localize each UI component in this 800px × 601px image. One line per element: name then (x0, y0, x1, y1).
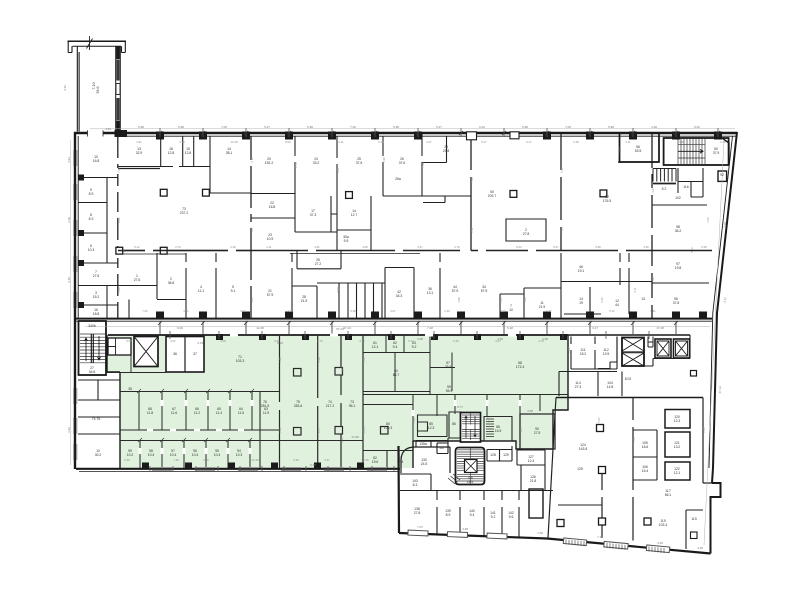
svg-text:6.77: 6.77 (618, 147, 622, 153)
svg-text:12.4: 12.4 (528, 459, 535, 463)
svg-text:2.79: 2.79 (317, 339, 323, 343)
svg-text:5.98: 5.98 (393, 125, 399, 129)
svg-text:173.4: 173.4 (516, 365, 525, 369)
svg-text:5.28: 5.28 (507, 326, 513, 330)
svg-text:3.07: 3.07 (250, 227, 254, 233)
svg-text:56.5: 56.5 (446, 389, 453, 393)
svg-text:4.91: 4.91 (67, 157, 71, 163)
svg-text:7.07: 7.07 (417, 525, 423, 529)
svg-text:3.07: 3.07 (390, 309, 396, 313)
svg-text:2.11: 2.11 (287, 309, 293, 313)
svg-text:12.1: 12.1 (372, 345, 379, 349)
svg-text:9.4: 9.4 (393, 345, 398, 349)
svg-text:137: 137 (439, 446, 445, 450)
svg-text:2.11: 2.11 (723, 297, 727, 303)
svg-text:103.3: 103.3 (236, 359, 245, 363)
svg-text:13: 13 (641, 297, 645, 301)
svg-text:3.98: 3.98 (359, 339, 365, 343)
svg-text:2.11: 2.11 (250, 157, 254, 163)
svg-text:2.46: 2.46 (600, 297, 604, 303)
svg-text:14.8: 14.8 (607, 385, 614, 389)
svg-text:57.43: 57.43 (336, 327, 344, 331)
svg-text:38.1: 38.1 (226, 151, 233, 155)
svg-text:2.40: 2.40 (720, 140, 726, 144)
svg-text:176.5: 176.5 (603, 199, 612, 203)
svg-text:11.9: 11.9 (263, 411, 269, 415)
svg-text:5.12: 5.12 (378, 140, 384, 144)
svg-text:12.3: 12.3 (428, 426, 435, 430)
svg-text:3.27: 3.27 (495, 339, 501, 343)
svg-text:2.79: 2.79 (538, 339, 544, 343)
svg-text:5.98: 5.98 (595, 245, 601, 249)
svg-text:9.36: 9.36 (274, 339, 280, 343)
svg-text:57.9: 57.9 (267, 293, 274, 297)
svg-text:2.79: 2.79 (454, 245, 460, 249)
svg-text:27.8: 27.8 (414, 511, 421, 515)
svg-text:8.3: 8.3 (413, 483, 418, 487)
svg-text:5.27: 5.27 (481, 140, 487, 144)
svg-text:3.27: 3.27 (417, 245, 423, 249)
svg-text:5.12: 5.12 (134, 245, 140, 249)
svg-text:16.5: 16.5 (495, 429, 502, 433)
svg-text:128: 128 (490, 453, 496, 457)
svg-text:9.36: 9.36 (179, 140, 185, 144)
svg-text:57.9: 57.9 (452, 289, 459, 293)
svg-text:16.8: 16.8 (93, 159, 100, 163)
svg-text:7.06: 7.06 (632, 437, 636, 443)
svg-text:3.27: 3.27 (426, 140, 432, 144)
svg-text:5.98: 5.98 (307, 125, 313, 129)
svg-text:17.48: 17.48 (656, 326, 664, 330)
svg-text:10.4: 10.4 (170, 453, 177, 457)
svg-text:26a: 26a (395, 177, 401, 181)
svg-text:7.06: 7.06 (117, 167, 121, 173)
svg-text:3.48: 3.48 (573, 140, 579, 144)
svg-text:34.3: 34.3 (396, 294, 403, 298)
svg-text:3.27: 3.27 (592, 326, 598, 330)
svg-text:34.6: 34.6 (89, 370, 96, 374)
svg-text:281.5: 281.5 (261, 404, 270, 408)
svg-text:36.2: 36.2 (675, 229, 682, 233)
svg-text:5.27: 5.27 (560, 167, 564, 173)
svg-text:7.06: 7.06 (706, 217, 710, 223)
svg-text:9.2: 9.2 (412, 345, 417, 349)
svg-text:9.1: 9.1 (231, 289, 236, 293)
svg-text:4.91: 4.91 (183, 309, 189, 313)
svg-text:11.1: 11.1 (198, 289, 204, 293)
svg-text:9.2: 9.2 (491, 515, 496, 519)
svg-text:5.2: 5.2 (662, 187, 667, 191)
svg-text:57.9: 57.9 (481, 289, 488, 293)
svg-text:12.48: 12.48 (252, 458, 259, 462)
svg-text:125: 125 (577, 467, 583, 471)
svg-text:4.91: 4.91 (650, 309, 656, 313)
svg-text:56.1: 56.1 (665, 493, 672, 497)
svg-text:4.91: 4.91 (136, 140, 142, 144)
svg-text:17.08: 17.08 (351, 435, 359, 439)
svg-text:96.1: 96.1 (349, 404, 356, 408)
svg-text:10.4: 10.4 (214, 453, 221, 457)
svg-text:30.2: 30.2 (95, 453, 102, 457)
svg-text:13.2: 13.2 (674, 445, 681, 449)
svg-text:37.8: 37.8 (673, 301, 680, 305)
svg-text:5.28: 5.28 (701, 245, 707, 249)
svg-text:2.11: 2.11 (625, 140, 631, 144)
svg-text:12.48: 12.48 (256, 326, 264, 330)
svg-text:97.43: 97.43 (343, 326, 351, 330)
svg-text:4.42: 4.42 (63, 85, 67, 91)
svg-text:84.7: 84.7 (393, 373, 400, 377)
svg-text:1.98: 1.98 (519, 427, 523, 433)
svg-text:100.3: 100.3 (384, 426, 393, 430)
svg-text:4.36: 4.36 (643, 245, 649, 249)
svg-text:6.77: 6.77 (546, 309, 552, 313)
svg-text:37.6: 37.6 (399, 161, 406, 165)
svg-text:16.8: 16.8 (269, 205, 276, 209)
svg-text:9.36: 9.36 (340, 437, 344, 443)
svg-text:4.36: 4.36 (657, 541, 663, 545)
svg-text:5.98: 5.98 (178, 125, 184, 129)
svg-text:2.40: 2.40 (499, 297, 503, 303)
svg-text:5.98: 5.98 (608, 125, 614, 129)
svg-text:12.48: 12.48 (362, 426, 366, 433)
svg-text:33.2: 33.2 (313, 161, 320, 165)
svg-text:16.6: 16.6 (642, 445, 649, 449)
svg-text:2.40: 2.40 (203, 458, 209, 462)
svg-text:5.27: 5.27 (597, 417, 601, 423)
svg-text:4.36: 4.36 (697, 546, 703, 550)
svg-text:12.48: 12.48 (362, 458, 369, 462)
svg-text:10.3: 10.3 (88, 248, 95, 252)
svg-text:27.2: 27.2 (315, 262, 322, 266)
svg-text:7.06: 7.06 (560, 227, 564, 233)
svg-text:18.8: 18.8 (93, 312, 100, 316)
svg-text:7.06: 7.06 (142, 309, 148, 313)
svg-text:27.3: 27.3 (575, 385, 582, 389)
svg-text:15.4: 15.4 (642, 469, 649, 473)
svg-text:9.36: 9.36 (177, 326, 183, 330)
svg-text:10.3: 10.3 (236, 453, 243, 457)
svg-text:10.2: 10.2 (127, 453, 134, 457)
svg-text:8.02: 8.02 (625, 377, 632, 381)
svg-text:4.91: 4.91 (105, 127, 111, 131)
svg-text:11b: 11b (683, 185, 689, 189)
svg-text:47.14: 47.14 (718, 386, 722, 394)
svg-text:12.1: 12.1 (674, 471, 681, 475)
svg-text:4.91: 4.91 (314, 245, 320, 249)
svg-text:5.98: 5.98 (138, 125, 144, 129)
svg-text:102: 102 (675, 196, 681, 200)
svg-text:12.8: 12.8 (168, 151, 175, 155)
svg-text:9.5: 9.5 (344, 239, 349, 243)
svg-text:8.02: 8.02 (285, 140, 291, 144)
svg-text:2.11: 2.11 (338, 140, 344, 144)
svg-text:5.98: 5.98 (117, 287, 121, 293)
svg-text:3.38: 3.38 (67, 217, 71, 223)
svg-text:2.79: 2.79 (294, 162, 298, 168)
svg-text:10.4: 10.4 (192, 453, 199, 457)
svg-text:9.36: 9.36 (124, 458, 130, 462)
svg-text:7.48: 7.48 (486, 417, 490, 423)
svg-text:21.9: 21.9 (539, 305, 546, 309)
svg-text:3.27: 3.27 (651, 187, 655, 193)
svg-text:2.11: 2.11 (266, 245, 272, 249)
svg-text:92: 92 (720, 173, 724, 177)
svg-text:340b: 340b (88, 324, 96, 328)
svg-text:1.98: 1.98 (382, 157, 386, 163)
svg-text:6.02: 6.02 (567, 347, 571, 353)
svg-text:8.9: 8.9 (446, 513, 451, 517)
svg-text:4.48: 4.48 (250, 297, 254, 303)
svg-text:7.48: 7.48 (173, 458, 179, 462)
svg-text:7.17: 7.17 (597, 535, 603, 539)
svg-text:12.3: 12.3 (674, 419, 681, 423)
svg-text:93.6: 93.6 (96, 87, 100, 94)
svg-text:3.48: 3.48 (340, 367, 344, 373)
svg-text:152.2: 152.2 (265, 161, 274, 165)
svg-text:2.46: 2.46 (293, 458, 299, 462)
svg-text:10.9: 10.9 (267, 237, 274, 241)
svg-text:7.48: 7.48 (421, 162, 425, 168)
svg-text:4.78: 4.78 (197, 341, 203, 345)
svg-text:5.28: 5.28 (350, 309, 356, 313)
svg-text:27.6: 27.6 (134, 278, 141, 282)
svg-text:86: 86 (452, 422, 456, 426)
svg-text:9.4: 9.4 (470, 513, 475, 517)
svg-text:4.36: 4.36 (230, 245, 236, 249)
svg-text:6.02: 6.02 (479, 125, 485, 129)
svg-text:4.38: 4.38 (462, 527, 468, 531)
svg-text:4.08: 4.08 (336, 287, 340, 293)
svg-text:5.12: 5.12 (609, 309, 615, 313)
svg-text:7.48: 7.48 (427, 326, 433, 330)
svg-text:53.5: 53.5 (635, 149, 642, 153)
svg-text:11.6: 11.6 (171, 411, 177, 415)
svg-text:1.98: 1.98 (457, 297, 461, 303)
svg-text:5.27: 5.27 (436, 125, 442, 129)
svg-text:7.36: 7.36 (537, 531, 543, 535)
svg-text:237.2: 237.2 (180, 211, 189, 215)
svg-text:25.6: 25.6 (445, 365, 452, 369)
svg-text:3.42: 3.42 (67, 427, 71, 433)
svg-text:19.6: 19.6 (372, 460, 379, 464)
svg-text:6.02: 6.02 (694, 125, 700, 129)
svg-text:11.5: 11.5 (238, 411, 244, 415)
svg-text:3.07: 3.07 (170, 339, 176, 343)
svg-text:37.5: 37.5 (356, 161, 363, 165)
svg-text:21.9: 21.9 (301, 299, 308, 303)
svg-text:7.06: 7.06 (221, 125, 227, 129)
svg-text:18.5: 18.5 (467, 480, 474, 484)
svg-text:7.48: 7.48 (470, 177, 474, 183)
svg-text:3.48: 3.48 (278, 357, 282, 363)
svg-text:8.02: 8.02 (516, 245, 522, 249)
svg-text:2.11: 2.11 (633, 287, 637, 293)
svg-text:4.08: 4.08 (220, 339, 226, 343)
svg-text:2.11: 2.11 (470, 227, 474, 233)
svg-text:217.2: 217.2 (326, 404, 335, 408)
svg-text:8.02: 8.02 (117, 217, 121, 223)
svg-text:5.27: 5.27 (526, 140, 532, 144)
svg-text:37.3: 37.3 (310, 213, 317, 217)
svg-text:35: 35 (128, 387, 132, 391)
svg-text:10: 10 (509, 308, 513, 312)
svg-text:10.4: 10.4 (148, 453, 155, 457)
svg-text:6.02: 6.02 (336, 167, 340, 173)
svg-text:6.48: 6.48 (310, 463, 316, 467)
svg-text:9.6: 9.6 (509, 515, 514, 519)
svg-text:23.8: 23.8 (443, 149, 450, 153)
svg-text:7.06: 7.06 (565, 125, 571, 129)
svg-text:135a: 135a (419, 442, 427, 446)
svg-text:74.76: 74.76 (92, 417, 101, 421)
svg-text:27.5: 27.5 (534, 431, 541, 435)
svg-text:2.40: 2.40 (453, 339, 459, 343)
svg-text:13.9: 13.9 (603, 352, 610, 356)
svg-text:4.08: 4.08 (362, 245, 368, 249)
svg-text:8.3: 8.3 (89, 217, 94, 221)
svg-text:2.79: 2.79 (175, 245, 181, 249)
svg-text:27.8: 27.8 (523, 232, 530, 236)
svg-text:6.02: 6.02 (240, 309, 246, 313)
svg-text:143.8: 143.8 (579, 447, 588, 451)
svg-text:6.02: 6.02 (278, 427, 282, 433)
svg-text:5.27: 5.27 (126, 339, 132, 343)
svg-text:24.5: 24.5 (421, 462, 428, 466)
svg-text:5.98: 5.98 (522, 125, 528, 129)
svg-text:9.36: 9.36 (679, 140, 685, 144)
svg-text:21.8: 21.8 (530, 479, 537, 483)
svg-text:5.27: 5.27 (553, 245, 559, 249)
svg-text:7.48: 7.48 (651, 277, 655, 283)
svg-text:12.48: 12.48 (231, 140, 238, 144)
svg-text:6.02: 6.02 (702, 427, 706, 433)
svg-text:15.2: 15.2 (580, 352, 587, 356)
svg-text:115: 115 (691, 517, 697, 521)
svg-text:36: 36 (173, 352, 177, 356)
svg-text:103.4: 103.4 (659, 523, 668, 527)
svg-text:19: 19 (579, 301, 583, 305)
svg-text:5.28: 5.28 (362, 357, 366, 363)
svg-text:12.8: 12.8 (185, 151, 192, 155)
svg-text:129: 129 (503, 453, 509, 457)
svg-text:17.4: 17.4 (397, 460, 404, 464)
svg-text:19.8: 19.8 (675, 266, 682, 270)
svg-text:32.9: 32.9 (136, 151, 143, 155)
svg-text:13.1: 13.1 (427, 291, 434, 295)
svg-text:1.98: 1.98 (523, 297, 527, 303)
svg-text:27.6: 27.6 (93, 274, 100, 278)
svg-text:4.58: 4.58 (527, 409, 533, 413)
svg-text:11.4: 11.4 (216, 411, 222, 415)
svg-text:4.48: 4.48 (651, 125, 657, 129)
svg-text:5.12: 5.12 (690, 247, 694, 253)
svg-text:4.08: 4.08 (417, 337, 423, 341)
svg-text:44: 44 (615, 303, 619, 307)
svg-text:15.2: 15.2 (93, 295, 100, 299)
svg-text:7.48: 7.48 (723, 221, 728, 228)
svg-text:283.6: 283.6 (294, 404, 303, 408)
svg-text:12.7: 12.7 (351, 213, 358, 217)
svg-text:37: 37 (193, 352, 197, 356)
svg-text:8.9: 8.9 (89, 192, 94, 196)
svg-text:2.40: 2.40 (444, 309, 450, 313)
svg-text:19.1: 19.1 (578, 269, 585, 273)
svg-text:6.77: 6.77 (317, 427, 321, 433)
svg-text:203.7: 203.7 (488, 194, 497, 198)
svg-text:5.27: 5.27 (264, 125, 270, 129)
svg-text:7.06: 7.06 (350, 125, 356, 129)
svg-text:4.42: 4.42 (120, 249, 126, 253)
svg-text:37.9: 37.9 (713, 151, 720, 155)
svg-text:6.77: 6.77 (457, 405, 463, 409)
svg-text:2.40: 2.40 (412, 417, 416, 423)
svg-text:5.27: 5.27 (500, 309, 506, 313)
svg-text:11.2: 11.2 (194, 411, 200, 415)
svg-text:5.12: 5.12 (408, 339, 414, 343)
svg-text:36.8: 36.8 (168, 281, 175, 285)
svg-text:11.8: 11.8 (147, 411, 153, 415)
svg-text:3.40: 3.40 (67, 277, 71, 283)
svg-text:3.27: 3.27 (324, 458, 330, 462)
svg-text:5.28: 5.28 (317, 357, 321, 363)
